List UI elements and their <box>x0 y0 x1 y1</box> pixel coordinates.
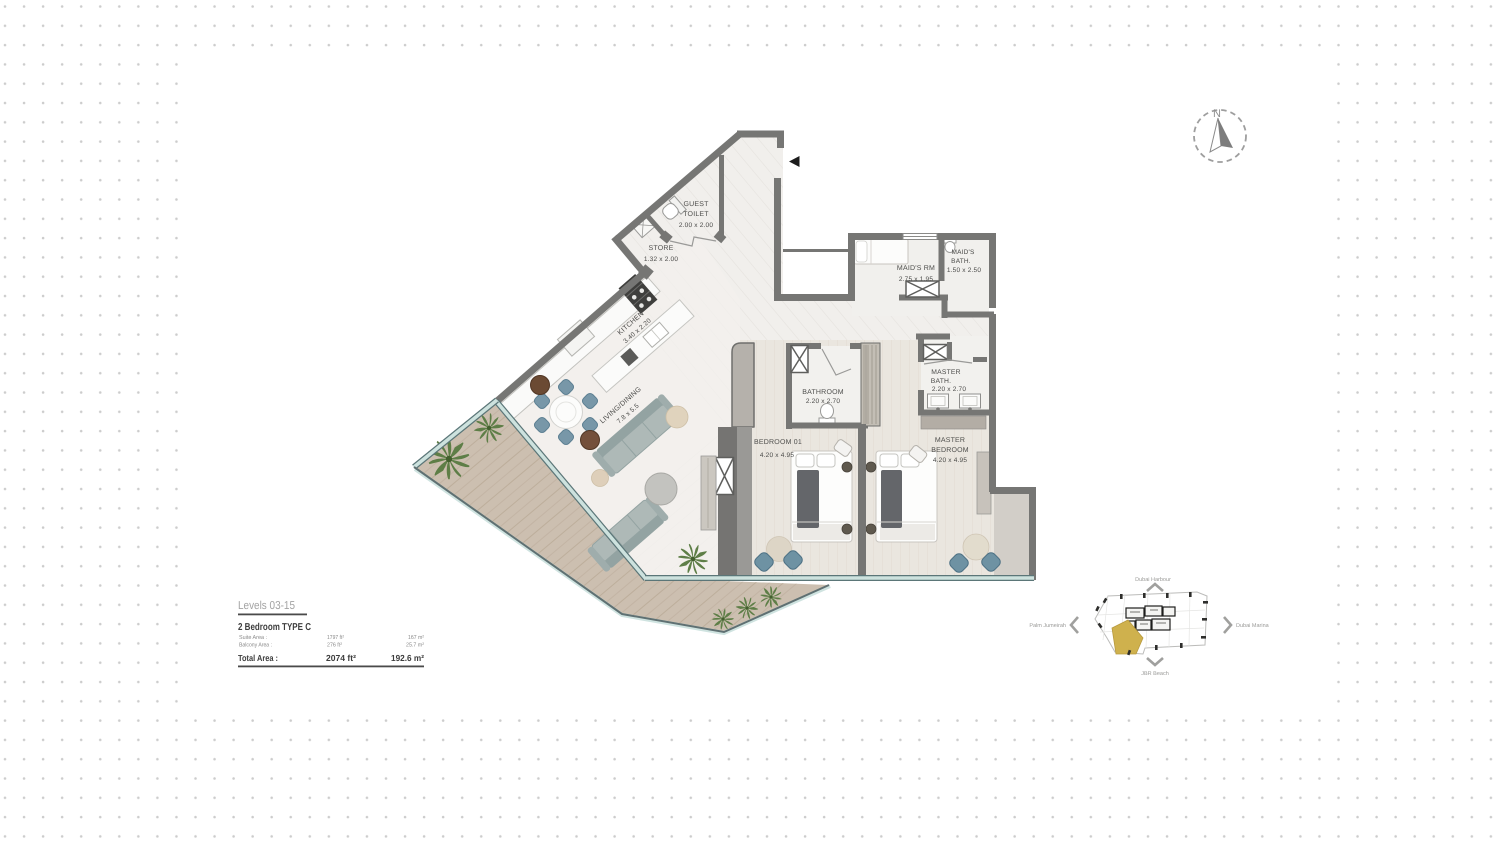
svg-text:MAID'S RM: MAID'S RM <box>897 265 935 272</box>
svg-text:2 Bedroom TYPE C: 2 Bedroom TYPE C <box>238 622 311 633</box>
svg-text:276 ft²: 276 ft² <box>327 642 342 649</box>
svg-text:Palm Jumeirah: Palm Jumeirah <box>1029 623 1066 629</box>
svg-text:4.20 x 4.95: 4.20 x 4.95 <box>760 452 795 459</box>
svg-text:Dubai Marina: Dubai Marina <box>1236 623 1270 629</box>
svg-text:167 m²: 167 m² <box>408 634 424 641</box>
svg-text:Suite Area :: Suite Area : <box>239 634 267 641</box>
svg-text:Levels 03-15: Levels 03-15 <box>238 600 295 612</box>
svg-text:JBR Beach: JBR Beach <box>1141 671 1169 677</box>
svg-text:MAID'S: MAID'S <box>951 249 974 256</box>
svg-text:1.32 x 2.00: 1.32 x 2.00 <box>644 256 679 263</box>
svg-text:25.7 m²: 25.7 m² <box>406 642 424 649</box>
svg-text:MASTER: MASTER <box>931 369 961 376</box>
svg-text:Dubai Harbour: Dubai Harbour <box>1135 577 1171 583</box>
svg-text:4.20 x 4.95: 4.20 x 4.95 <box>933 457 968 464</box>
svg-text:2074 ft²: 2074 ft² <box>326 653 356 663</box>
svg-text:MASTER: MASTER <box>935 437 965 444</box>
svg-text:2.20 x 2.70: 2.20 x 2.70 <box>932 386 967 393</box>
svg-text:2.75 x 1.95: 2.75 x 1.95 <box>899 276 934 283</box>
svg-text:N: N <box>1213 108 1221 120</box>
svg-text:1.50 x 2.50: 1.50 x 2.50 <box>947 267 982 274</box>
svg-text:Total Area :: Total Area : <box>238 653 278 663</box>
svg-text:BEDROOM 01: BEDROOM 01 <box>754 439 802 446</box>
svg-text:1797 ft²: 1797 ft² <box>327 634 344 641</box>
svg-text:2.00 x 2.00: 2.00 x 2.00 <box>679 222 714 229</box>
svg-text:GUEST: GUEST <box>683 201 709 208</box>
svg-text:BEDROOM: BEDROOM <box>931 447 969 454</box>
svg-text:BATH.: BATH. <box>931 378 952 385</box>
svg-text:192.6 m²: 192.6 m² <box>391 653 424 663</box>
svg-text:Balcony Area :: Balcony Area : <box>239 642 272 649</box>
svg-text:2.20 x 2.70: 2.20 x 2.70 <box>806 398 841 405</box>
svg-text:BATH.: BATH. <box>951 258 971 265</box>
svg-text:BATHROOM: BATHROOM <box>802 389 844 396</box>
svg-text:TOILET: TOILET <box>683 211 709 218</box>
svg-text:STORE: STORE <box>649 245 674 252</box>
